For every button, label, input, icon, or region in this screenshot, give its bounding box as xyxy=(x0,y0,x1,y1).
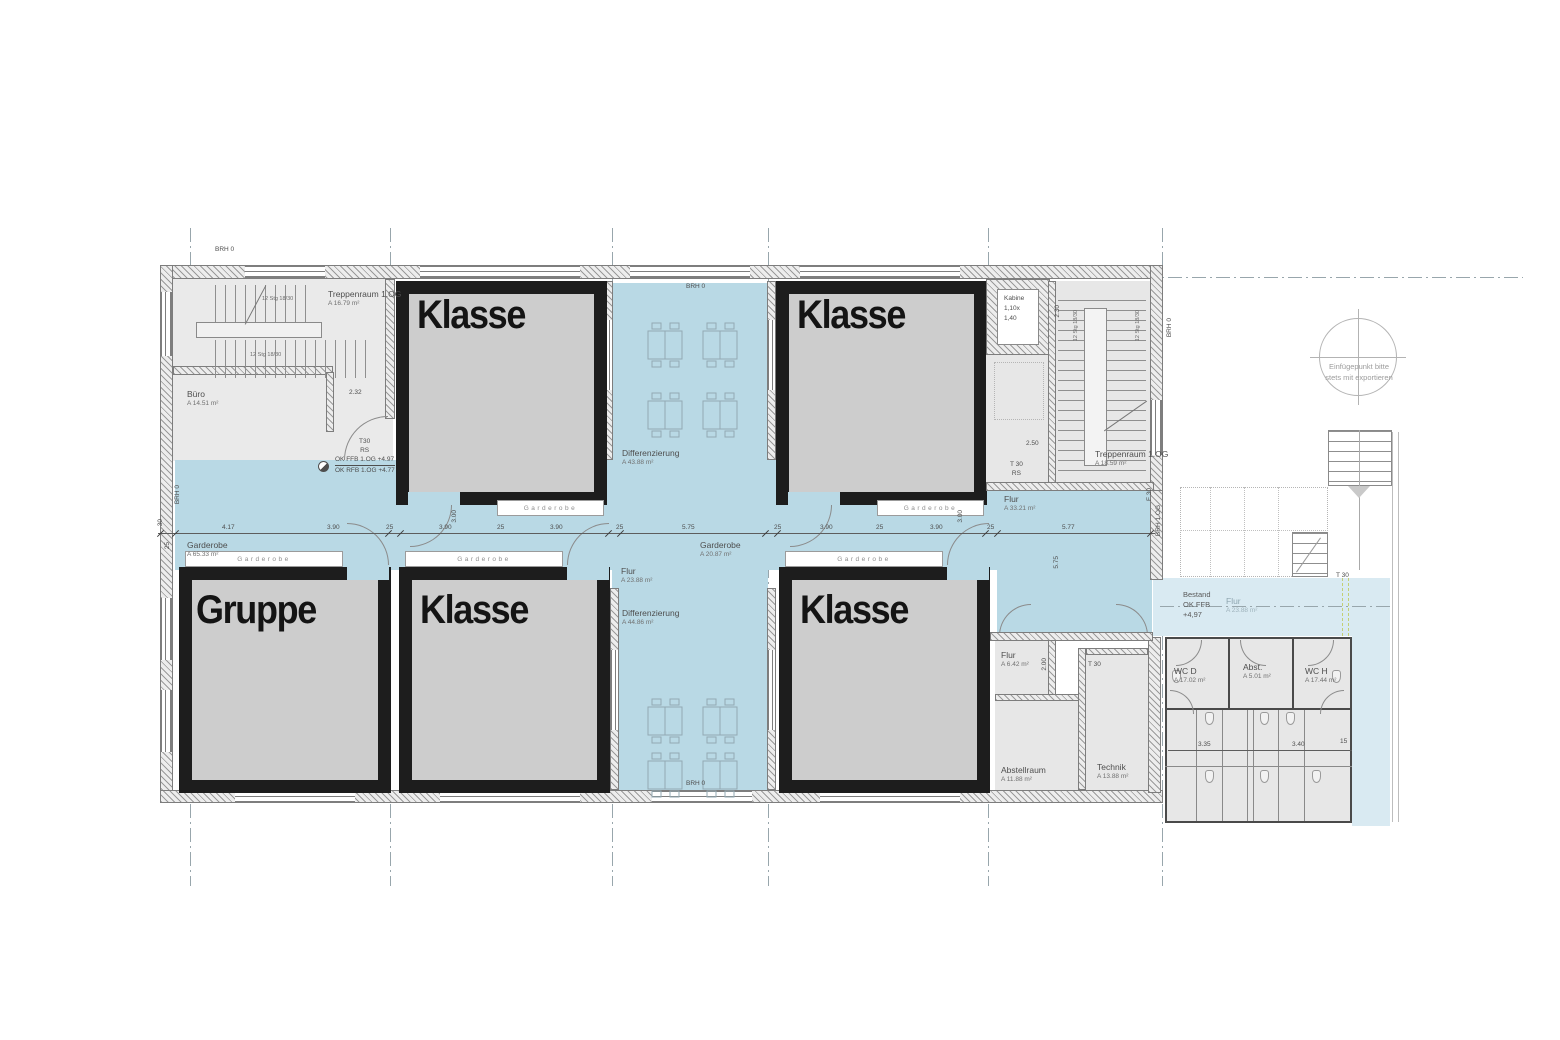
room-name: Flur xyxy=(621,566,652,577)
dim-value: 2.32 xyxy=(349,389,362,396)
dim-value: 2.00 xyxy=(1041,658,1048,671)
room-area: A 6.42 m² xyxy=(1001,661,1029,669)
stair-flight xyxy=(215,285,315,325)
dim-value: 25 xyxy=(876,524,883,531)
stall-wall xyxy=(1304,766,1305,821)
bestand-line1: Bestand xyxy=(1183,590,1211,600)
door-opening xyxy=(947,567,989,580)
room-area: A 23.88 m² xyxy=(621,577,652,585)
stall-wall xyxy=(1222,766,1223,821)
window xyxy=(161,292,172,356)
bestand-line3: +4,97 xyxy=(1183,610,1211,620)
dim-value: 25 xyxy=(774,524,781,531)
dim-value: 3.00 xyxy=(957,510,964,523)
room-name: Differenzierung xyxy=(622,448,680,459)
existing-structure-line xyxy=(1278,487,1279,577)
existing-stair-steps xyxy=(1329,431,1391,485)
room-name: Treppenraum 1.OG xyxy=(1095,449,1168,460)
door-opening xyxy=(347,567,389,580)
dim-value: 5.75 xyxy=(1053,556,1060,569)
window xyxy=(800,266,960,278)
dim-value: 15 xyxy=(1340,738,1347,745)
window xyxy=(630,266,750,278)
dimension-line xyxy=(1168,750,1352,751)
room-name: Garderobe xyxy=(700,540,741,551)
wc-fixture xyxy=(1260,712,1269,725)
room-name: WC D xyxy=(1174,666,1205,677)
room-area: A 17.02 m² xyxy=(1174,677,1205,685)
insert-point-label: Einfügepunkt bitte stets mit exportieren xyxy=(1320,362,1398,383)
wc-wall xyxy=(1228,637,1230,710)
existing-stair-centerline xyxy=(1359,430,1360,570)
room-area: A 23.88 m² xyxy=(1226,607,1257,615)
room-label: Flur A 6.42 m² xyxy=(1001,650,1029,669)
wc-fixture xyxy=(1205,712,1214,725)
wc-fixture xyxy=(1205,770,1214,783)
dim-value: 3.90 xyxy=(930,524,943,531)
brh-label: BRH 0 xyxy=(174,485,181,504)
stall-wall xyxy=(1196,710,1197,766)
room-area: A 11.88 m² xyxy=(1001,776,1046,784)
table-group xyxy=(700,698,740,744)
garderobe-strip: Garderobe xyxy=(405,551,563,567)
table-group xyxy=(645,392,685,438)
insert-point-line2: stets mit exportieren xyxy=(1320,373,1398,384)
existing-wall xyxy=(1398,432,1399,822)
garderobe-strip: Garderobe xyxy=(877,500,984,516)
wall xyxy=(1078,648,1086,790)
room-name: Treppenraum 1.OG xyxy=(328,289,401,300)
room-name: Abstellraum xyxy=(1001,765,1046,776)
f30-label: F 30 xyxy=(1146,488,1153,501)
t30-line1: T30 xyxy=(359,437,370,446)
wall xyxy=(1048,640,1056,698)
dim-value: 2.30 xyxy=(1054,305,1061,318)
kabine-line2: 1,10x xyxy=(1004,304,1024,314)
insert-point-crosshair-v xyxy=(1358,309,1359,405)
door-type-label: T30 RS xyxy=(359,437,370,455)
room-area: A 43.88 m² xyxy=(622,459,680,467)
door-type-label: T 30 RS xyxy=(1010,460,1023,478)
window-interior xyxy=(768,320,775,390)
room-name: Flur xyxy=(1226,596,1257,607)
stall-wall xyxy=(1278,766,1279,821)
kabine-line1: Kabine xyxy=(1004,294,1024,304)
garderobe-strip: Garderobe xyxy=(785,551,943,567)
elevator-label: Kabine 1,10x 1,40 xyxy=(1004,294,1024,323)
window-interior xyxy=(611,650,618,730)
stall-wall xyxy=(1304,710,1305,766)
wc-fixture xyxy=(1312,770,1321,783)
clearance-rect xyxy=(994,362,1044,420)
room-area: A 44.86 m² xyxy=(622,619,680,627)
room-label: Abstellraum A 11.88 m² xyxy=(1001,765,1046,784)
room-area: A 33.21 m² xyxy=(1004,505,1035,513)
room-label: Abst. A 5.01 m² xyxy=(1243,662,1271,681)
existing-structure-line xyxy=(1180,530,1328,531)
table-group xyxy=(645,752,685,798)
dimension-line xyxy=(158,533,1155,534)
room-label: Flur A 33.21 m² xyxy=(1004,494,1035,513)
dim-value: 5.77 xyxy=(1062,524,1075,531)
dim-value: 25 xyxy=(164,542,171,549)
dim-value: 3.00 xyxy=(451,510,458,523)
stall-wall xyxy=(1165,766,1352,767)
wc-fixture xyxy=(1260,770,1269,783)
existing-structure-line xyxy=(1210,487,1211,577)
window xyxy=(1151,400,1162,455)
garderobe-strip: Garderobe xyxy=(497,500,604,516)
room-area: A 14.51 m² xyxy=(187,400,218,408)
dim-value: 25 xyxy=(497,524,504,531)
level-marker-text: OK FFB 1.OG +4.97 OK RFB 1.OG +4.77 xyxy=(335,455,395,476)
table-group xyxy=(700,322,740,368)
room-name: Abst. xyxy=(1243,662,1271,673)
level-rfb: OK RFB 1.OG +4.77 xyxy=(335,466,395,476)
door-opening xyxy=(408,492,460,505)
room-label: Treppenraum 1.OG A 18.59 m² xyxy=(1095,449,1168,468)
door-opening xyxy=(788,492,840,505)
dim-value: 3.90 xyxy=(550,524,563,531)
wc-wall xyxy=(1292,637,1294,710)
stair-landing xyxy=(196,322,322,338)
table-group xyxy=(645,698,685,744)
existing-stair-arrow xyxy=(1348,486,1370,498)
room-name: Technik xyxy=(1097,762,1128,773)
room-name: Flur xyxy=(1004,494,1035,505)
room-label-klasse-tl: Klasse xyxy=(417,293,525,338)
room-area: A 5.01 m² xyxy=(1243,673,1271,681)
outer-wall-right-lower xyxy=(1148,637,1161,793)
room-label: Technik A 13.88 m² xyxy=(1097,762,1128,781)
room-name: Differenzierung xyxy=(622,608,680,619)
dim-value: 3.90 xyxy=(820,524,833,531)
room-label-klasse-tr: Klasse xyxy=(797,293,905,338)
table-group xyxy=(645,322,685,368)
room-label: Flur A 23.88 m² xyxy=(621,566,652,585)
window xyxy=(420,266,580,278)
dim-value: 3.40 xyxy=(1292,741,1305,748)
kabine-line3: 1,40 xyxy=(1004,314,1024,324)
bestand-line2: OK FFB xyxy=(1183,600,1211,610)
door-type-label: T 30 xyxy=(1336,572,1349,579)
window xyxy=(245,266,325,278)
window xyxy=(161,598,172,660)
level-marker-icon xyxy=(318,461,329,472)
brh-label: BRH 0 xyxy=(215,246,234,253)
t30-line2: RS xyxy=(359,446,370,455)
stair-note: 12 Stg 18/30 xyxy=(250,352,281,358)
floor-plan: 12 Stg 18/30 12 Stg 18/30 Klasse Klasse … xyxy=(0,0,1560,1040)
existing-structure-line xyxy=(1244,487,1245,577)
room-label: Flur A 23.88 m² xyxy=(1226,596,1257,615)
room-area: A 17.44 m² xyxy=(1305,677,1336,685)
wc-fixture xyxy=(1286,712,1295,725)
brh-label: BRH 0 xyxy=(686,283,705,290)
t30-line2: RS xyxy=(1010,469,1023,478)
room-label: Differenzierung A 44.86 m² xyxy=(622,608,680,627)
wall-stair-tr-bottom xyxy=(986,482,1154,491)
brh-label: BRH 0 xyxy=(686,780,705,787)
room-name: Flur xyxy=(1001,650,1029,661)
room-area: A 65.33 m² xyxy=(187,551,228,559)
existing-wall xyxy=(1392,432,1393,822)
table-group xyxy=(700,752,740,798)
room-label-gruppe: Gruppe xyxy=(196,588,316,633)
dim-value: 25 xyxy=(987,524,994,531)
wall-buero-right xyxy=(326,372,334,432)
dashed-joint xyxy=(1342,578,1343,636)
stair-spine xyxy=(1084,308,1107,466)
dim-value: 3.35 xyxy=(1198,741,1211,748)
dim-value: 3.90 xyxy=(439,524,452,531)
room-label: Treppenraum 1.OG A 16.79 m² xyxy=(328,289,401,308)
dim-value: 4.17 xyxy=(222,524,235,531)
stall-wall xyxy=(1278,710,1279,766)
stall-wall xyxy=(1222,710,1223,766)
room-label: WC H A 17.44 m² xyxy=(1305,666,1336,685)
room-name: WC H xyxy=(1305,666,1336,677)
door-type-label: T 30 xyxy=(1088,661,1101,668)
room-label-klasse-br: Klasse xyxy=(800,588,908,633)
stair-note: 12 Stg 18/30 xyxy=(1073,310,1079,341)
bestand-label: Bestand OK FFB +4,97 xyxy=(1183,590,1211,619)
brh-label: BRH 0 xyxy=(1166,318,1173,337)
insert-point-line1: Einfügepunkt bitte xyxy=(1320,362,1398,373)
window-interior xyxy=(768,650,775,730)
t30-line1: T 30 xyxy=(1010,460,1023,469)
dim-value: 5.75 xyxy=(682,524,695,531)
dim-value: 30 xyxy=(157,519,164,526)
brh-label: BRH 1.OG xyxy=(1155,505,1162,536)
table-group xyxy=(700,392,740,438)
wall xyxy=(990,632,1153,641)
room-area: A 20.87 m² xyxy=(700,551,741,559)
window xyxy=(161,690,172,752)
stair-note: 12 Stg 18/30 xyxy=(262,296,293,302)
wall xyxy=(1086,648,1148,655)
door-opening xyxy=(567,567,609,580)
wall xyxy=(995,694,1080,701)
level-ffb: OK FFB 1.OG +4.97 xyxy=(335,455,395,466)
room-label-klasse-bm: Klasse xyxy=(420,588,528,633)
stair-flight xyxy=(215,340,375,378)
dim-value: 25 xyxy=(616,524,623,531)
stair-note: 12 Stg 18/30 xyxy=(1135,310,1141,341)
room-label: WC D A 17.02 m² xyxy=(1174,666,1205,685)
room-name: Garderobe xyxy=(187,540,228,551)
room-label: Büro A 14.51 m² xyxy=(187,389,218,408)
room-label: Garderobe A 20.87 m² xyxy=(700,540,741,559)
room-name: Büro xyxy=(187,389,218,400)
room-area: A 13.88 m² xyxy=(1097,773,1128,781)
center-column xyxy=(612,283,768,790)
stall-wall xyxy=(1196,766,1197,821)
dim-value: 2.50 xyxy=(1026,440,1039,447)
room-area: A 18.59 m² xyxy=(1095,460,1168,468)
bestand-right-strip xyxy=(1352,636,1390,826)
room-label: Garderobe A 65.33 m² xyxy=(187,540,228,559)
dashed-joint xyxy=(1348,578,1349,636)
room-area: A 16.79 m² xyxy=(328,300,401,308)
dim-value: 3.90 xyxy=(327,524,340,531)
room-label: Differenzierung A 43.88 m² xyxy=(622,448,680,467)
dim-value: 25 xyxy=(386,524,393,531)
